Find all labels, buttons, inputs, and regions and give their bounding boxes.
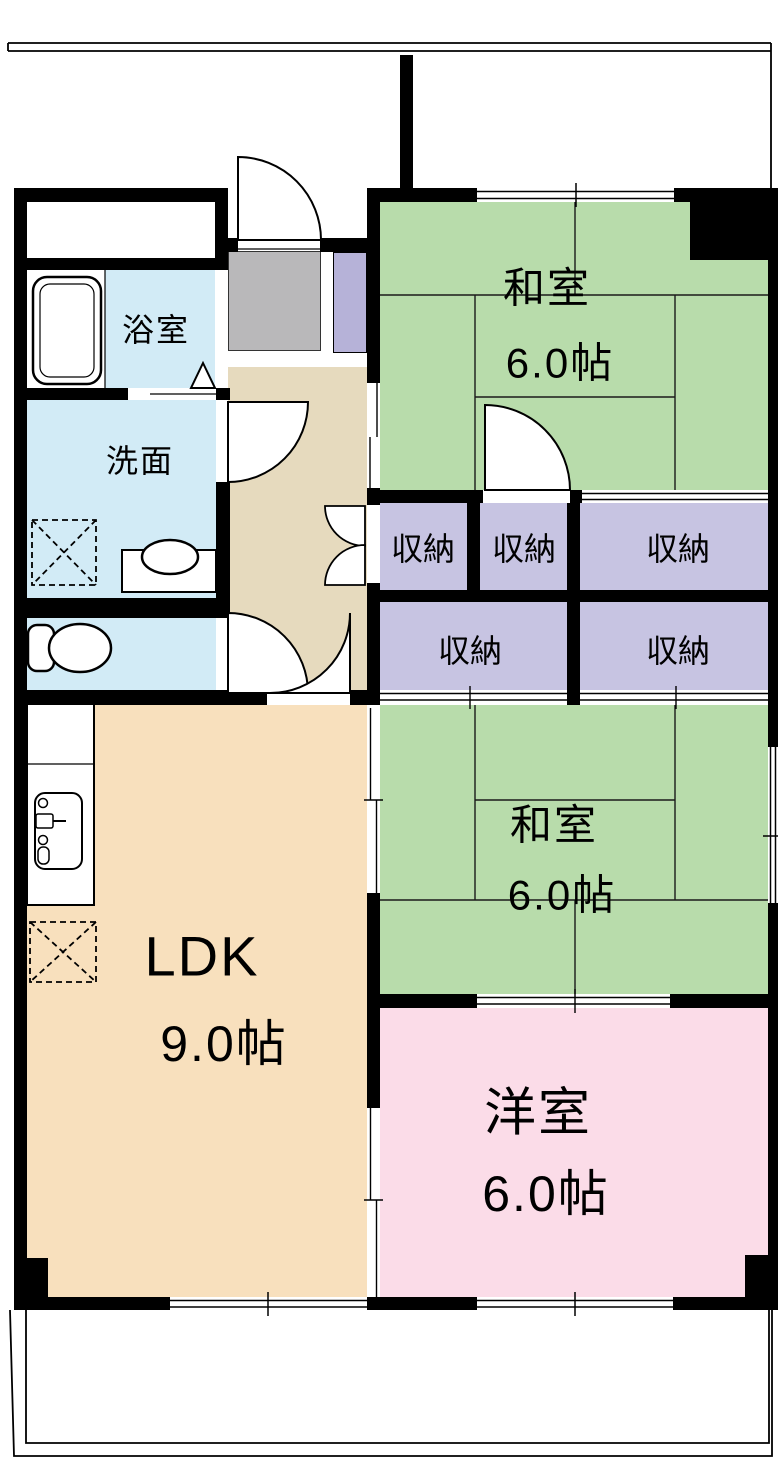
sliding-door-ldk-western (364, 1108, 383, 1297)
door-arc-storage1-lower (325, 545, 365, 585)
vanity-sink-icon (122, 540, 216, 592)
fusuma-storage5 (580, 686, 768, 709)
western-label: 洋室 (484, 1071, 592, 1146)
japanese-middle-size: 6.0帖 (508, 862, 616, 923)
toilet-icon (28, 624, 111, 672)
washing-machine-pan-icon (32, 520, 96, 585)
refrigerator-space-icon (30, 922, 96, 982)
fusuma-storage4 (380, 686, 567, 709)
door-arc-washroom (228, 402, 308, 482)
door-arc-storage2 (485, 405, 570, 490)
storage-label-4: 収納 (438, 626, 502, 672)
kitchen-counter-icon (27, 704, 94, 905)
window-bottom-ldk (170, 1292, 367, 1316)
window-right (763, 747, 778, 903)
japanese-middle-label: 和室 (510, 792, 598, 853)
door-arc-storage1-upper (325, 506, 365, 546)
washroom-label: 洗面 (106, 436, 174, 482)
japanese-top-label: 和室 (503, 255, 591, 316)
fusuma-storage3 (582, 494, 768, 500)
plan-linework (0, 0, 778, 1463)
sliding-door-japanese-top-entry (370, 383, 377, 488)
ldk-size: 9.0帖 (160, 1004, 288, 1076)
sliding-door-ldk-japanese (364, 708, 383, 893)
japanese-top-size: 6.0帖 (506, 330, 614, 391)
bathtub-icon (33, 277, 101, 384)
balcony-outline (10, 1310, 772, 1456)
western-size: 6.0帖 (482, 1154, 610, 1226)
window-bottom-western (477, 1292, 673, 1316)
door-arc-toilet (228, 613, 308, 693)
ldk-label: LDK (145, 924, 260, 989)
storage-label-1: 収納 (391, 524, 455, 570)
fusuma-japanese-western (477, 989, 670, 1013)
corridor-outline (8, 43, 771, 188)
storage-label-5: 収納 (646, 626, 710, 672)
bathroom-door-triangle (191, 363, 215, 388)
window-top (477, 183, 674, 207)
storage-label-2: 収納 (492, 524, 556, 570)
bathroom-label: 浴室 (122, 305, 190, 351)
storage-label-3: 収納 (646, 524, 710, 570)
floor-plan: 浴室 洗面 和室 6.0帖 収納 収納 収納 収納 収納 和室 6.0帖 LDK… (0, 0, 778, 1463)
door-arc-entrance (238, 157, 321, 240)
